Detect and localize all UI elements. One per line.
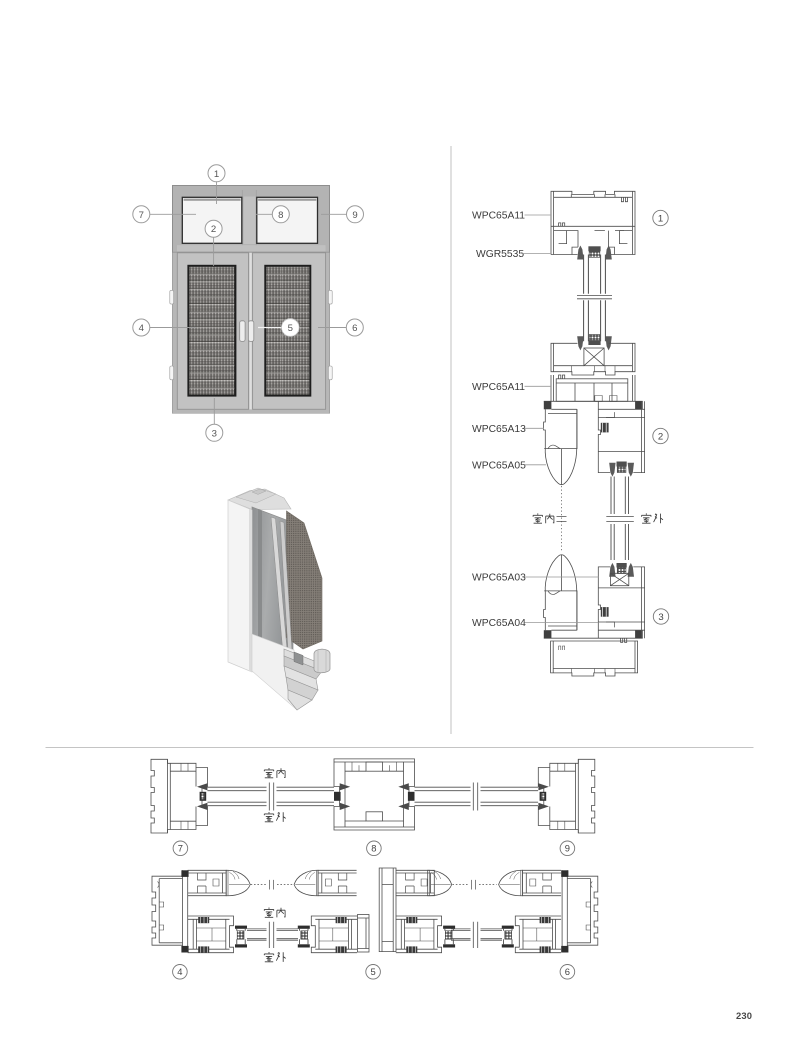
svg-text:2: 2: [211, 224, 216, 235]
svg-text:7: 7: [178, 843, 183, 854]
svg-text:1: 1: [214, 169, 219, 180]
svg-text:2: 2: [658, 431, 663, 442]
svg-text:5: 5: [288, 323, 293, 334]
svg-text:3: 3: [658, 612, 663, 623]
svg-text:WPC65A03: WPC65A03: [472, 573, 526, 584]
svg-text:9: 9: [565, 843, 570, 854]
svg-text:5: 5: [370, 966, 375, 977]
svg-text:WGR5535: WGR5535: [476, 249, 524, 260]
svg-text:WPC65A13: WPC65A13: [472, 424, 526, 435]
svg-text:6: 6: [565, 966, 570, 977]
svg-text:3: 3: [212, 428, 217, 439]
svg-text:WPC65A11: WPC65A11: [472, 382, 525, 393]
svg-text:WPC65A05: WPC65A05: [472, 460, 526, 471]
svg-text:8: 8: [278, 210, 283, 221]
svg-text:8: 8: [371, 843, 376, 854]
svg-text:WPC65A04: WPC65A04: [472, 618, 526, 629]
svg-text:WPC65A11: WPC65A11: [472, 211, 525, 222]
svg-text:7: 7: [139, 210, 144, 221]
svg-text:1: 1: [658, 213, 663, 224]
svg-text:9: 9: [352, 210, 357, 221]
svg-text:4: 4: [177, 966, 182, 977]
svg-text:230: 230: [736, 1010, 752, 1021]
svg-text:6: 6: [352, 323, 357, 334]
svg-text:4: 4: [139, 323, 145, 334]
